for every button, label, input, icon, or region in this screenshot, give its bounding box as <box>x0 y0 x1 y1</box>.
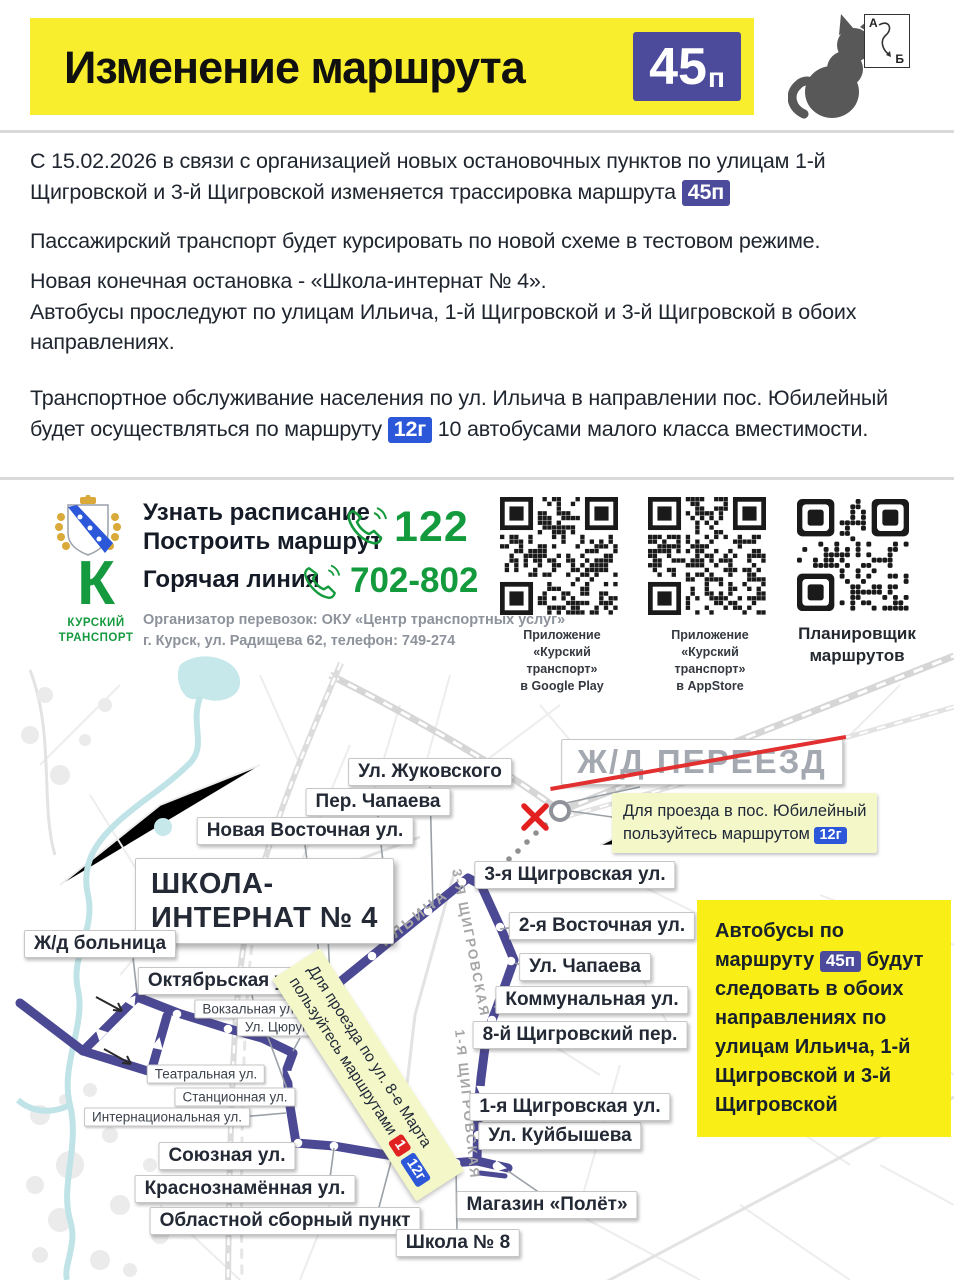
paragraph-3-line2: Автобусы проследуют по улицам Ильича, 1-… <box>30 300 856 355</box>
map-label-kuybysheva: Ул. Куйбышева <box>478 1122 641 1150</box>
map-label-krasnoznamennaya: Краснознамённая ул. <box>135 1175 356 1203</box>
map-label-8-shchigrovsky-per: 8-й Щигровский пер. <box>473 1021 688 1049</box>
map-label-zhd-bolnitsa: Ж/д больница <box>24 930 176 958</box>
qr-code-icon <box>797 499 917 616</box>
route-map: ИЛЬИЧА 3-Я ЩИГРОВСКАЯ 1-Я ЩИГРОВСКАЯ <box>0 645 954 1280</box>
map-label-2-vostochnaya: 2-я Восточная ул. <box>509 912 695 940</box>
divider-top <box>0 130 954 133</box>
poster: Изменение маршрута 45 п А Б С 15. <box>0 0 954 1280</box>
phone-122: 122 <box>394 503 469 552</box>
qr-code-icon <box>648 497 772 620</box>
qr-route-planner: Планировщикмаршрутов <box>797 499 917 667</box>
map-label-novaya-vostochnaya: Новая Восточная ул. <box>197 817 414 845</box>
route-scheme-card: А Б <box>864 14 910 68</box>
map-label-zhd-pereezd: Ж/Д ПЕРЕЕЗД <box>561 739 843 785</box>
map-label-stantsionnaya: Станционная ул. <box>174 1088 295 1107</box>
map-label-shkola8: Школа № 8 <box>396 1229 520 1257</box>
map-label-kommunalnaya: Коммунальная ул. <box>495 986 688 1014</box>
kursk-coat-of-arms-icon <box>53 495 123 557</box>
map-label-teatralnaya: Театральная ул. <box>147 1065 265 1084</box>
info-badge-45p: 45п <box>820 951 861 972</box>
note-badge-12g: 12г <box>400 1152 432 1188</box>
cat-logo: А Б <box>788 8 954 123</box>
map-label-zhukovskogo: Ул. Жуковского <box>348 758 512 786</box>
note-badge-12g: 12г <box>814 827 846 844</box>
a-to-b-squiggle-icon <box>865 15 909 67</box>
paragraph-3: Новая конечная остановка - «Школа-интерн… <box>30 266 932 358</box>
inline-badge-12g: 12г <box>388 417 432 444</box>
crossing-detour-note: Для проезда в пос. Юбилейный пользуйтесь… <box>612 793 877 853</box>
map-label-magazin-polet: Магазин «Полёт» <box>456 1191 637 1219</box>
logo-k-letter: К <box>52 556 140 612</box>
route-badge-45p: 45 п <box>633 32 741 101</box>
hotline-label: Горячая линия <box>143 566 320 594</box>
phone-icon <box>343 503 389 549</box>
note-badge-1: 1 <box>387 1133 411 1158</box>
map-label-1-shchigrovskaya: 1-я Щигровская ул. <box>469 1093 670 1121</box>
map-label-oblastnoy: Областной сборный пункт <box>150 1207 421 1235</box>
crossing-point-circle <box>551 802 569 820</box>
phone-702-802: 702-802 <box>350 561 478 601</box>
map-label-soyuznaya: Союзная ул. <box>158 1142 295 1170</box>
paragraph-3-line1: Новая конечная остановка - «Школа-интерн… <box>30 269 546 293</box>
divider-middle <box>0 477 954 480</box>
kursk-transport-logo: К КУРСКИЙ ТРАНСПОРТ <box>52 556 140 646</box>
map-label-per-chapaeva: Пер. Чапаева <box>306 788 451 816</box>
paragraph-4: Транспортное обслуживание населения по у… <box>30 383 932 444</box>
route-badge-suffix: п <box>708 62 725 94</box>
route-badge-number: 45 <box>649 41 707 93</box>
phone-icon <box>300 561 342 603</box>
paragraph-4-text-2: 10 автобусами малого класса вместимости. <box>438 417 868 441</box>
route-info-box: Автобусы по маршруту 45п будут следовать… <box>697 900 951 1137</box>
map-label-3-shchigrovskaya: 3-я Щигровская ул. <box>474 861 675 889</box>
map-label-internatsionalnaya: Интернациональная ул. <box>84 1108 250 1127</box>
logo-brand-text: КУРСКИЙ ТРАНСПОРТ <box>52 616 140 646</box>
map-label-chapaeva: Ул. Чапаева <box>519 953 651 981</box>
paragraph-2: Пассажирский транспорт будет курсировать… <box>30 226 932 257</box>
header-band: Изменение маршрута 45 п <box>30 18 754 115</box>
qr-code-icon <box>500 497 624 620</box>
paragraph-1: С 15.02.2026 в связи с организацией новы… <box>30 146 932 207</box>
inline-badge-45p: 45п <box>682 180 730 207</box>
page-title: Изменение маршрута <box>64 42 525 94</box>
